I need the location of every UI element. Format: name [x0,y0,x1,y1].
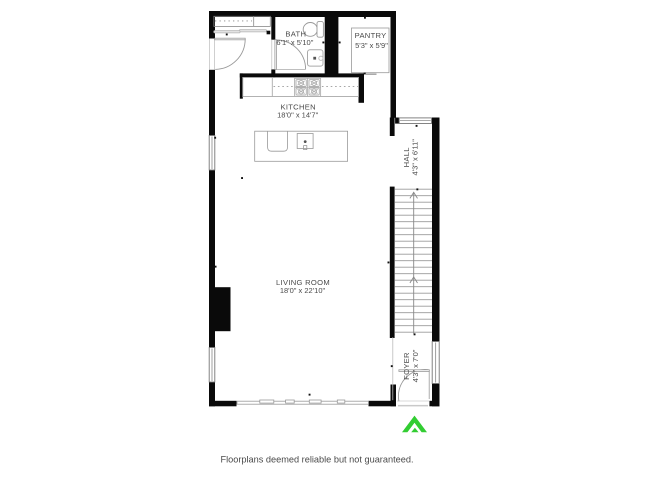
svg-text:4'3" x 7'0": 4'3" x 7'0" [411,349,420,382]
svg-text:4'3" x 6'11": 4'3" x 6'11" [411,139,420,176]
svg-text:HALL: HALL [402,147,411,167]
svg-text:18'0" x 14'7": 18'0" x 14'7" [277,111,318,120]
svg-text:PANTRY: PANTRY [355,31,387,40]
svg-text:FOYER: FOYER [402,352,411,380]
svg-text:Floorplans deemed reliable but: Floorplans deemed reliable but not guara… [220,455,413,465]
svg-text:18'0" x 22'10": 18'0" x 22'10" [280,286,326,295]
svg-text:5'3" x 5'9": 5'3" x 5'9" [355,41,388,50]
svg-text:6'1" x 5'10": 6'1" x 5'10" [276,38,313,47]
